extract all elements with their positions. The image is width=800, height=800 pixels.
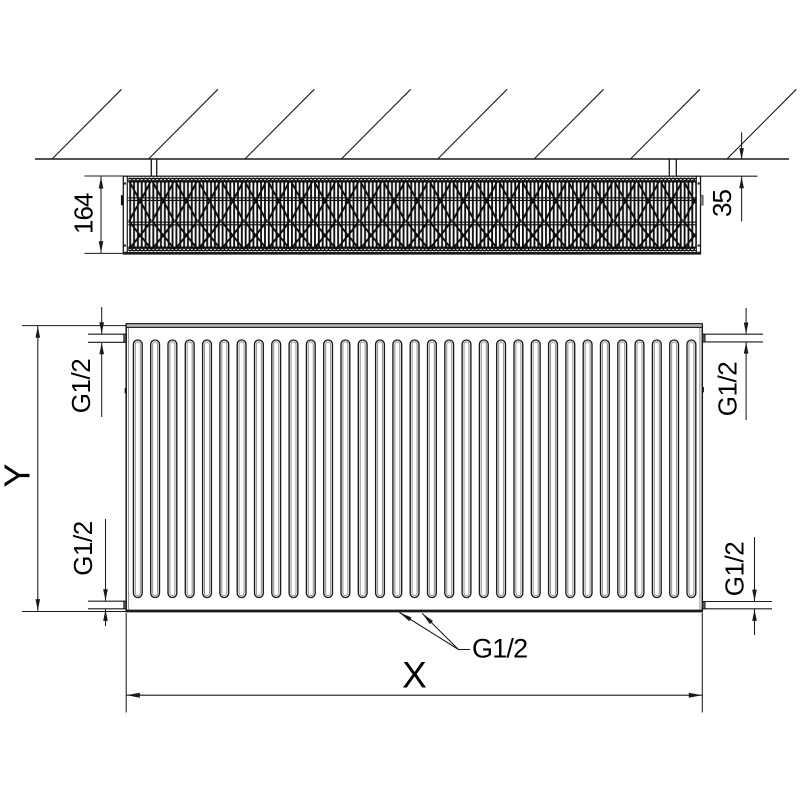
svg-text:G1/2: G1/2 [66,359,96,413]
svg-text:G1/2: G1/2 [472,634,527,664]
svg-text:X: X [402,654,427,695]
svg-text:G1/2: G1/2 [68,521,98,575]
svg-text:G1/2: G1/2 [719,542,749,596]
svg-text:Y: Y [0,463,37,487]
svg-text:35: 35 [707,190,737,217]
svg-text:164: 164 [68,193,98,234]
svg-text:G1/2: G1/2 [712,362,742,416]
